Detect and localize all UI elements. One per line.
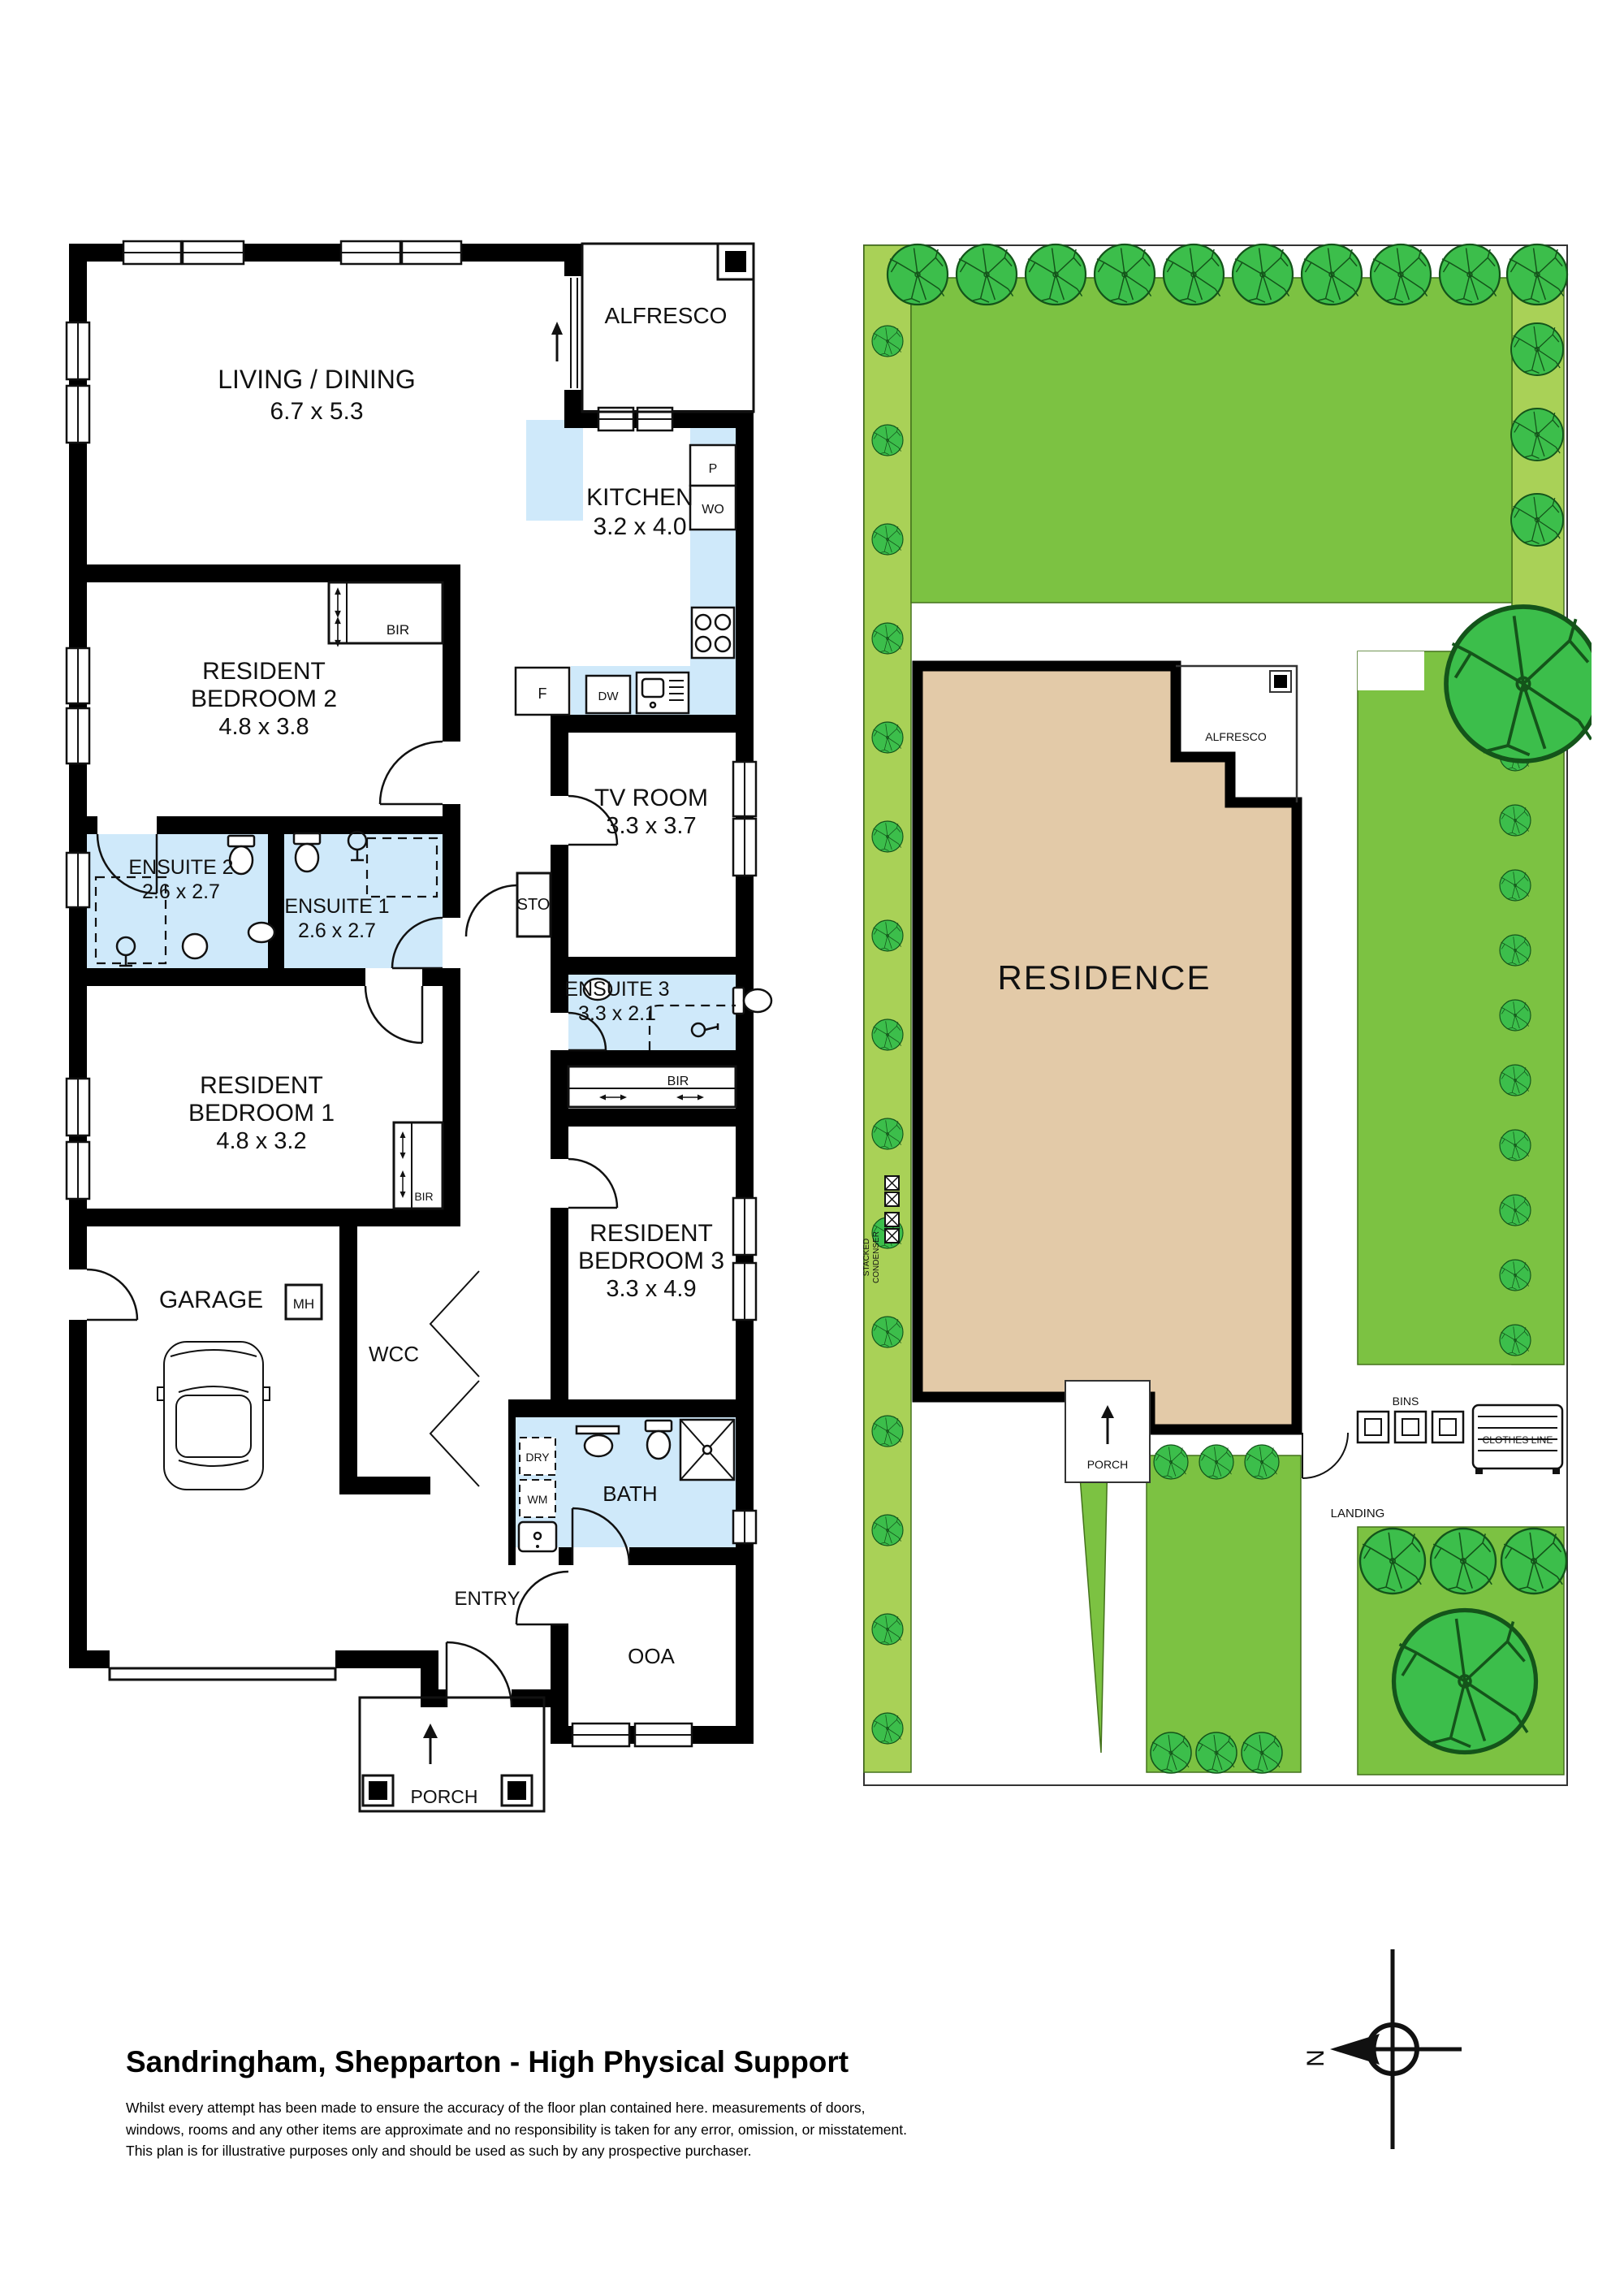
room-label-entry: ENTRY	[455, 1588, 520, 1610]
basin-icon	[585, 1435, 612, 1456]
page: BIR BIR BIR	[0, 0, 1624, 2275]
landing-trees	[1360, 1529, 1566, 1594]
room-dims-bedroom2: 4.8 x 3.8	[218, 714, 309, 740]
room-label-alfresco: ALFRESCO	[605, 303, 728, 328]
shower-icon	[680, 1420, 734, 1480]
kitchen-sink	[637, 673, 689, 713]
clothes-line-label: CLOTHES LINE	[1483, 1434, 1553, 1446]
north-label: N	[1302, 2049, 1329, 2067]
room-label-porch: PORCH	[410, 1786, 477, 1807]
disclaimer: Whilst every attempt has been made to en…	[126, 2097, 907, 2162]
room-dims-ensuite2: 2.6 x 2.7	[142, 880, 220, 903]
room-label-bedroom2-line2: BEDROOM 2	[191, 686, 337, 712]
site-porch-label: PORCH	[1087, 1458, 1129, 1471]
center-lawn-strip	[1147, 1455, 1301, 1772]
room-label-living: LIVING / DINING	[218, 365, 416, 394]
site-alfresco-label: ALFRESCO	[1205, 730, 1267, 743]
left-strip-shrubs	[872, 326, 903, 1744]
stacked-label: STACKED	[862, 1239, 871, 1277]
toilet-icon	[646, 1421, 672, 1459]
sliding-door	[551, 278, 577, 388]
site-porch: PORCH	[1065, 1381, 1150, 1482]
room-dims-kitchen: 3.2 x 4.0	[593, 513, 686, 540]
basin-icon	[248, 923, 274, 942]
room-label-wcc: WCC	[369, 1342, 419, 1366]
room-label-bedroom3-line1: RESIDENT	[590, 1220, 713, 1247]
room-label-ooa: OOA	[628, 1644, 675, 1668]
car-icon	[158, 1342, 270, 1490]
room-label-ensuite2: ENSUITE 2	[128, 856, 233, 879]
room-dims-bedroom3: 3.3 x 4.9	[606, 1276, 696, 1302]
room-dims-ensuite3: 3.3 x 2.1	[578, 1002, 656, 1025]
toilet-icon	[733, 988, 771, 1014]
bins-label: BINS	[1393, 1395, 1419, 1408]
floor-plan: BIR BIR BIR	[49, 227, 861, 1933]
label-dryer: DRY	[525, 1451, 550, 1464]
bir-bed1: BIR	[394, 1122, 443, 1209]
bir-bed2: BIR	[329, 582, 443, 647]
bir-label: BIR	[667, 1075, 689, 1088]
room-label-bedroom1-line2: BEDROOM 1	[188, 1100, 335, 1127]
residence-label: RESIDENCE	[997, 958, 1211, 997]
alfresco-post	[725, 251, 746, 272]
label-washing-machine: WM	[528, 1493, 548, 1506]
room-label-bedroom3-line2: BEDROOM 3	[578, 1248, 724, 1274]
room-label-kitchen: KITCHEN	[586, 484, 693, 511]
room-dims-tv: 3.3 x 3.7	[606, 813, 696, 839]
room-label-bedroom1-line1: RESIDENT	[200, 1072, 323, 1099]
wcc-bifold-door	[430, 1271, 479, 1486]
plan-title: Sandringham, Shepparton - High Physical …	[126, 2045, 849, 2079]
room-label-bedroom2-line1: RESIDENT	[202, 658, 326, 685]
room-dims-bedroom1: 4.8 x 3.2	[216, 1128, 306, 1154]
north-arrow: N	[1299, 1949, 1543, 2160]
clothes-line: CLOTHES LINE	[1473, 1405, 1562, 1474]
disclaimer-line3: This plan is for illustrative purposes o…	[126, 2140, 907, 2162]
backyard-lawn	[911, 278, 1512, 603]
basin-icon	[183, 934, 207, 958]
room-label-ensuite1: ENSUITE 1	[284, 895, 389, 918]
room-dims-living: 6.7 x 5.3	[270, 398, 363, 425]
large-tree	[1446, 607, 1592, 761]
large-tree	[1394, 1611, 1536, 1753]
porch-post	[369, 1781, 387, 1800]
disclaimer-line1: Whilst every attempt has been made to en…	[126, 2097, 907, 2119]
label-manhole: MH	[293, 1296, 314, 1312]
bir-label: BIR	[414, 1190, 433, 1203]
laundry-tub	[519, 1522, 556, 1551]
label-wall-oven: WO	[702, 503, 724, 517]
room-label-sto: STO	[517, 896, 551, 914]
disclaimer-line2: windows, rooms and any other items are a…	[126, 2119, 907, 2141]
label-pantry: P	[709, 462, 718, 476]
vanity-counter	[577, 1426, 619, 1434]
condenser-label: CONDENSER	[872, 1231, 881, 1283]
label-dishwasher: DW	[598, 690, 620, 703]
room-label-tv: TV ROOM	[594, 785, 708, 811]
north-pointer-icon	[1330, 2034, 1380, 2065]
entry-arrow-icon	[423, 1724, 438, 1738]
room-dims-ensuite1: 2.6 x 2.7	[298, 919, 376, 942]
garage-door	[110, 1668, 335, 1680]
toilet-icon	[294, 833, 320, 872]
porch-post	[508, 1781, 526, 1800]
bir-label: BIR	[387, 622, 409, 638]
room-label-garage: GARAGE	[159, 1287, 263, 1313]
lawn-notch	[1358, 651, 1424, 690]
site-alfresco-post	[1274, 675, 1287, 688]
room-label-bath: BATH	[603, 1481, 657, 1506]
bir-bed3: BIR	[568, 1066, 736, 1107]
landing-label: LANDING	[1331, 1507, 1385, 1520]
site-plan: RESIDENCE ALFRESCO STACKED CONDENSER POR…	[861, 227, 1592, 1819]
room-label-ensuite3: ENSUITE 3	[564, 978, 669, 1001]
label-fridge: F	[538, 686, 547, 702]
kitchen-island	[526, 420, 583, 521]
